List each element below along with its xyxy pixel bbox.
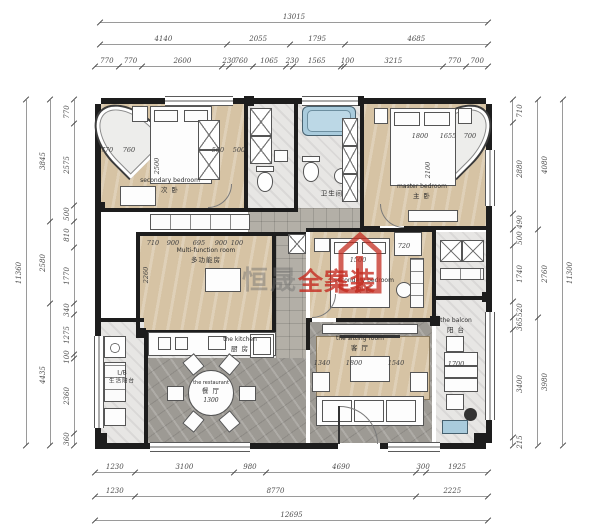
wardrobe-icon bbox=[462, 240, 484, 262]
window-top-2 bbox=[302, 96, 358, 106]
wall-int-v6 bbox=[432, 228, 436, 322]
dimension-segment: 1230 bbox=[95, 458, 135, 473]
dimension-value: 500 bbox=[63, 208, 71, 221]
dimension-segment: 1770 bbox=[60, 248, 75, 304]
wall-int-h6b bbox=[336, 318, 436, 322]
dimension-segment: 810 bbox=[60, 222, 75, 248]
balcony-mat bbox=[442, 420, 468, 434]
label-multi-function: Multi-function room 多功能房 bbox=[177, 247, 236, 265]
dimension-value: 760 bbox=[229, 57, 252, 65]
dimension-segment: 760 bbox=[229, 52, 252, 67]
label-life-balcony: L/B 生活阳台 bbox=[109, 370, 135, 387]
dimension-segment: 2055 bbox=[227, 30, 290, 45]
nightstand bbox=[458, 108, 472, 124]
dimension-value: 1275 bbox=[63, 326, 71, 344]
side-table bbox=[410, 372, 428, 392]
wall-int-h7 bbox=[436, 296, 486, 300]
closet-icon bbox=[342, 174, 358, 202]
dimension-value: 770 bbox=[63, 106, 71, 119]
dimension-value: 980 bbox=[234, 463, 266, 471]
dimension-value: 770 bbox=[95, 57, 119, 65]
dimension-segment: 12695 bbox=[95, 506, 488, 521]
dimension-value: 490 bbox=[516, 216, 524, 229]
dimension-value: 2600 bbox=[142, 57, 222, 65]
wall-int-v5 bbox=[272, 232, 276, 334]
dimension-value: 3400 bbox=[516, 375, 524, 393]
multi-room-table bbox=[205, 268, 241, 292]
dining-chair bbox=[239, 386, 256, 401]
label-restaurant: the restaurant 餐 厅 1300 bbox=[193, 380, 229, 404]
interior-dimension: 1800 bbox=[412, 132, 429, 140]
dimension-value: 215 bbox=[516, 435, 524, 448]
dim-col-right-detail: 710288049050017405203653400215 bbox=[512, 100, 527, 445]
dimension-value: 1925 bbox=[426, 463, 488, 471]
dimension-segment: 1740 bbox=[512, 246, 527, 301]
dimension-segment: 770 bbox=[60, 100, 75, 124]
dimension-segment: 1925 bbox=[426, 458, 488, 473]
wall-int-h8 bbox=[95, 318, 144, 322]
pier bbox=[95, 433, 107, 445]
dimension-segment: 13015 bbox=[100, 8, 488, 23]
label-secondary-bedroom-2: secondary bedroom 次 卧 bbox=[334, 277, 394, 295]
balcony-table bbox=[444, 378, 478, 392]
dimension-value: 300 bbox=[416, 463, 426, 471]
dimension-value: 8770 bbox=[135, 487, 417, 495]
dim-row-bottom-total: 12695 bbox=[95, 506, 488, 521]
dimension-value: 12695 bbox=[95, 511, 488, 519]
dimension-value: 3215 bbox=[344, 57, 443, 65]
dimension-segment: 1795 bbox=[290, 30, 345, 45]
dimension-value: 4690 bbox=[266, 463, 417, 471]
dimension-segment: 1065 bbox=[253, 52, 286, 67]
balcony-chair bbox=[446, 394, 464, 410]
sofa-cushion bbox=[386, 400, 416, 422]
dimension-segment: 4080 bbox=[537, 100, 552, 230]
label-master-bedroom: master bedroom 主 卧 bbox=[397, 183, 447, 201]
toilet-icon bbox=[257, 172, 273, 192]
dimension-value: 770 bbox=[443, 57, 467, 65]
dimension-segment: 2575 bbox=[60, 124, 75, 206]
closet-icon bbox=[250, 108, 272, 136]
dimension-value: 770 bbox=[119, 57, 143, 65]
dim-row-top-detail: 7707702600230760106523015651003215770700 bbox=[95, 52, 488, 67]
dim-row-bottom-major: 123087702225 bbox=[95, 482, 488, 497]
interior-dimension: 1655 bbox=[440, 132, 457, 140]
dimension-value: 3845 bbox=[39, 152, 47, 170]
window-left-balcony bbox=[94, 336, 104, 428]
hall-cabinet bbox=[150, 214, 250, 230]
dimension-segment: 2225 bbox=[416, 482, 488, 497]
dimension-value: 1230 bbox=[95, 463, 135, 471]
interior-dimension: 100 bbox=[231, 239, 243, 247]
dimension-value: 500 bbox=[516, 231, 524, 244]
stove-burner-icon bbox=[175, 337, 188, 350]
dimension-segment: 770 bbox=[443, 52, 467, 67]
wall-int-v3 bbox=[360, 104, 364, 228]
dimension-segment: 4140 bbox=[100, 30, 227, 45]
dimension-segment: 2580 bbox=[36, 222, 51, 304]
interior-dimension: 2100 bbox=[424, 162, 432, 179]
dining-chair bbox=[167, 386, 184, 401]
dim-col-right-total: 11300 bbox=[562, 100, 577, 445]
pier bbox=[136, 328, 146, 338]
dimension-value: 230 bbox=[222, 57, 229, 65]
window-right-master bbox=[485, 150, 495, 206]
dimension-segment: 4435 bbox=[36, 304, 51, 445]
label-kitchen: the kitchen 厨 房 bbox=[223, 336, 257, 354]
interior-dimension: 900 bbox=[215, 239, 227, 247]
window-bottom-2 bbox=[388, 442, 440, 452]
dim-row-top-major: 4140205517954685 bbox=[100, 30, 488, 45]
interior-dimension: 710 bbox=[147, 239, 159, 247]
dimension-value: 4685 bbox=[345, 35, 488, 43]
wardrobe-icon bbox=[440, 240, 462, 262]
bookshelf bbox=[410, 258, 424, 308]
interior-dimension: 500 bbox=[233, 146, 245, 154]
dim-col-left-detail: 7702575500810177034012751002360360 bbox=[60, 100, 75, 445]
dimension-value: 13015 bbox=[100, 13, 488, 21]
dimension-value: 710 bbox=[516, 105, 524, 118]
dimension-segment: 3400 bbox=[512, 330, 527, 438]
dimension-segment: 3100 bbox=[135, 458, 235, 473]
dim-row-bottom-detail: 1230310098046903001925 bbox=[95, 458, 488, 473]
wall-int-v1 bbox=[244, 104, 248, 210]
tv-cabinet bbox=[322, 324, 418, 334]
dimension-segment: 500 bbox=[60, 206, 75, 222]
interior-dimension: 1700 bbox=[448, 360, 465, 368]
dimension-value: 4435 bbox=[39, 366, 47, 384]
stove-burner-icon bbox=[158, 337, 171, 350]
interior-dimension: 900 bbox=[167, 239, 179, 247]
side-table bbox=[312, 372, 330, 392]
dimension-value: 2225 bbox=[416, 487, 488, 495]
wall-int-v2 bbox=[294, 104, 298, 210]
dimension-segment: 3845 bbox=[36, 100, 51, 222]
dimension-value: 360 bbox=[63, 433, 71, 446]
dimension-segment: 1230 bbox=[95, 482, 135, 497]
dimension-segment: 770 bbox=[119, 52, 143, 67]
dimension-value: 2580 bbox=[39, 254, 47, 272]
pillow bbox=[362, 242, 386, 254]
interior-dimension: 2500 bbox=[153, 158, 161, 175]
closet-icon bbox=[250, 136, 272, 164]
dimension-value: 11360 bbox=[15, 261, 23, 283]
dimension-segment: 8770 bbox=[135, 482, 417, 497]
dimension-value: 1065 bbox=[253, 57, 286, 65]
pillow bbox=[334, 242, 358, 254]
dimension-segment: 3980 bbox=[537, 318, 552, 445]
dimension-value: 4140 bbox=[100, 35, 227, 43]
closet-icon bbox=[342, 118, 358, 146]
dimension-value: 365 bbox=[516, 317, 524, 330]
label-bathroom: 卫生间 bbox=[321, 189, 344, 198]
interior-dimension: 760 bbox=[123, 146, 135, 154]
dimension-segment: 360 bbox=[60, 434, 75, 445]
dimension-value: 3100 bbox=[135, 463, 235, 471]
dimension-segment: 3215 bbox=[344, 52, 443, 67]
dimension-segment: 215 bbox=[512, 438, 527, 445]
dimension-value: 2760 bbox=[541, 265, 549, 283]
dimension-value: 1770 bbox=[63, 267, 71, 285]
dimension-segment: 2760 bbox=[537, 230, 552, 318]
interior-dimension: 1800 bbox=[346, 359, 363, 367]
dim-row-top-total: 13015 bbox=[100, 8, 488, 23]
wall-int-h3 bbox=[136, 232, 306, 236]
dimension-value: 1230 bbox=[95, 487, 135, 495]
dimension-value: 4080 bbox=[541, 156, 549, 174]
dimension-value: 2055 bbox=[227, 35, 290, 43]
dimension-value: 2360 bbox=[63, 387, 71, 405]
wc-sink bbox=[274, 150, 288, 162]
dimension-segment: 2600 bbox=[142, 52, 222, 67]
dimension-value: 1795 bbox=[290, 35, 345, 43]
interior-dimension: 770 bbox=[101, 146, 113, 154]
dimension-segment: 4690 bbox=[266, 458, 417, 473]
dimension-value: 3980 bbox=[541, 373, 549, 391]
washing-machine-icon bbox=[104, 336, 126, 358]
wall-int-v8 bbox=[306, 322, 310, 350]
dim-col-right-major: 408027603980 bbox=[537, 100, 552, 445]
balcony-chair bbox=[446, 336, 464, 352]
wardrobe-icon bbox=[198, 150, 220, 180]
label-secondary-bedroom: secondary bedroom 次 卧 bbox=[140, 177, 200, 195]
pier bbox=[244, 96, 254, 106]
dimension-value: 11300 bbox=[566, 261, 574, 283]
dimension-segment: 230 bbox=[286, 52, 293, 67]
interior-dimension: 1500 bbox=[350, 256, 367, 264]
pillow bbox=[154, 110, 178, 122]
closet-icon bbox=[342, 146, 358, 174]
dimension-segment: 700 bbox=[466, 52, 488, 67]
toilet-icon bbox=[303, 162, 319, 182]
dimension-segment: 770 bbox=[95, 52, 119, 67]
label-leisure-balcony: the balcon 阳 台 bbox=[440, 317, 472, 335]
pier bbox=[95, 202, 105, 212]
interior-dimension: 700 bbox=[464, 132, 476, 140]
pillow bbox=[394, 112, 420, 126]
closet-cabinet bbox=[440, 268, 484, 280]
dimension-segment: 11300 bbox=[562, 100, 577, 445]
interior-dimension: 1540 bbox=[388, 359, 405, 367]
dimension-value: 700 bbox=[466, 57, 488, 65]
dim-col-left-total: 11360 bbox=[12, 100, 27, 445]
dimension-value: 810 bbox=[63, 228, 71, 241]
dim-col-left-major: 384525804435 bbox=[36, 100, 51, 445]
interior-dimension: 1340 bbox=[314, 359, 331, 367]
window-bottom-1 bbox=[150, 442, 250, 452]
floor-plan-canvas: 13015 4140205517954685 77077026002307601… bbox=[0, 0, 600, 532]
pier bbox=[474, 433, 486, 445]
dimension-value: 2880 bbox=[516, 160, 524, 178]
dimension-segment: 300 bbox=[416, 458, 426, 473]
interior-dimension: 695 bbox=[193, 239, 205, 247]
dimension-value: 230 bbox=[286, 57, 293, 65]
wardrobe-icon bbox=[288, 234, 306, 254]
pier bbox=[430, 316, 440, 326]
nightstand bbox=[132, 106, 148, 122]
dimension-value: 1740 bbox=[516, 265, 524, 283]
interior-dimension: 2260 bbox=[142, 267, 150, 284]
interior-dimension: 560 bbox=[212, 146, 224, 154]
balcony-sink bbox=[104, 408, 126, 426]
dimension-segment: 11360 bbox=[12, 100, 27, 445]
wall-int-h1 bbox=[101, 208, 298, 212]
pier bbox=[482, 292, 492, 302]
dimension-segment: 2880 bbox=[512, 123, 527, 215]
dimension-segment: 4685 bbox=[345, 30, 488, 45]
master-tv-cabinet bbox=[408, 210, 458, 222]
dimension-value: 2575 bbox=[63, 156, 71, 174]
dimension-value: 1565 bbox=[293, 57, 341, 65]
window-top-1 bbox=[165, 96, 233, 106]
nightstand bbox=[314, 238, 330, 252]
dimension-segment: 2360 bbox=[60, 359, 75, 434]
window-right-balcony bbox=[485, 312, 495, 420]
dimension-value: 520 bbox=[516, 303, 524, 316]
dimension-segment: 1565 bbox=[293, 52, 341, 67]
interior-dimension: 720 bbox=[398, 242, 410, 250]
label-sitting-room: the sitting room 客 厅 bbox=[336, 335, 384, 353]
dimension-segment: 980 bbox=[234, 458, 266, 473]
nightstand bbox=[374, 108, 388, 124]
pillow bbox=[424, 112, 450, 126]
